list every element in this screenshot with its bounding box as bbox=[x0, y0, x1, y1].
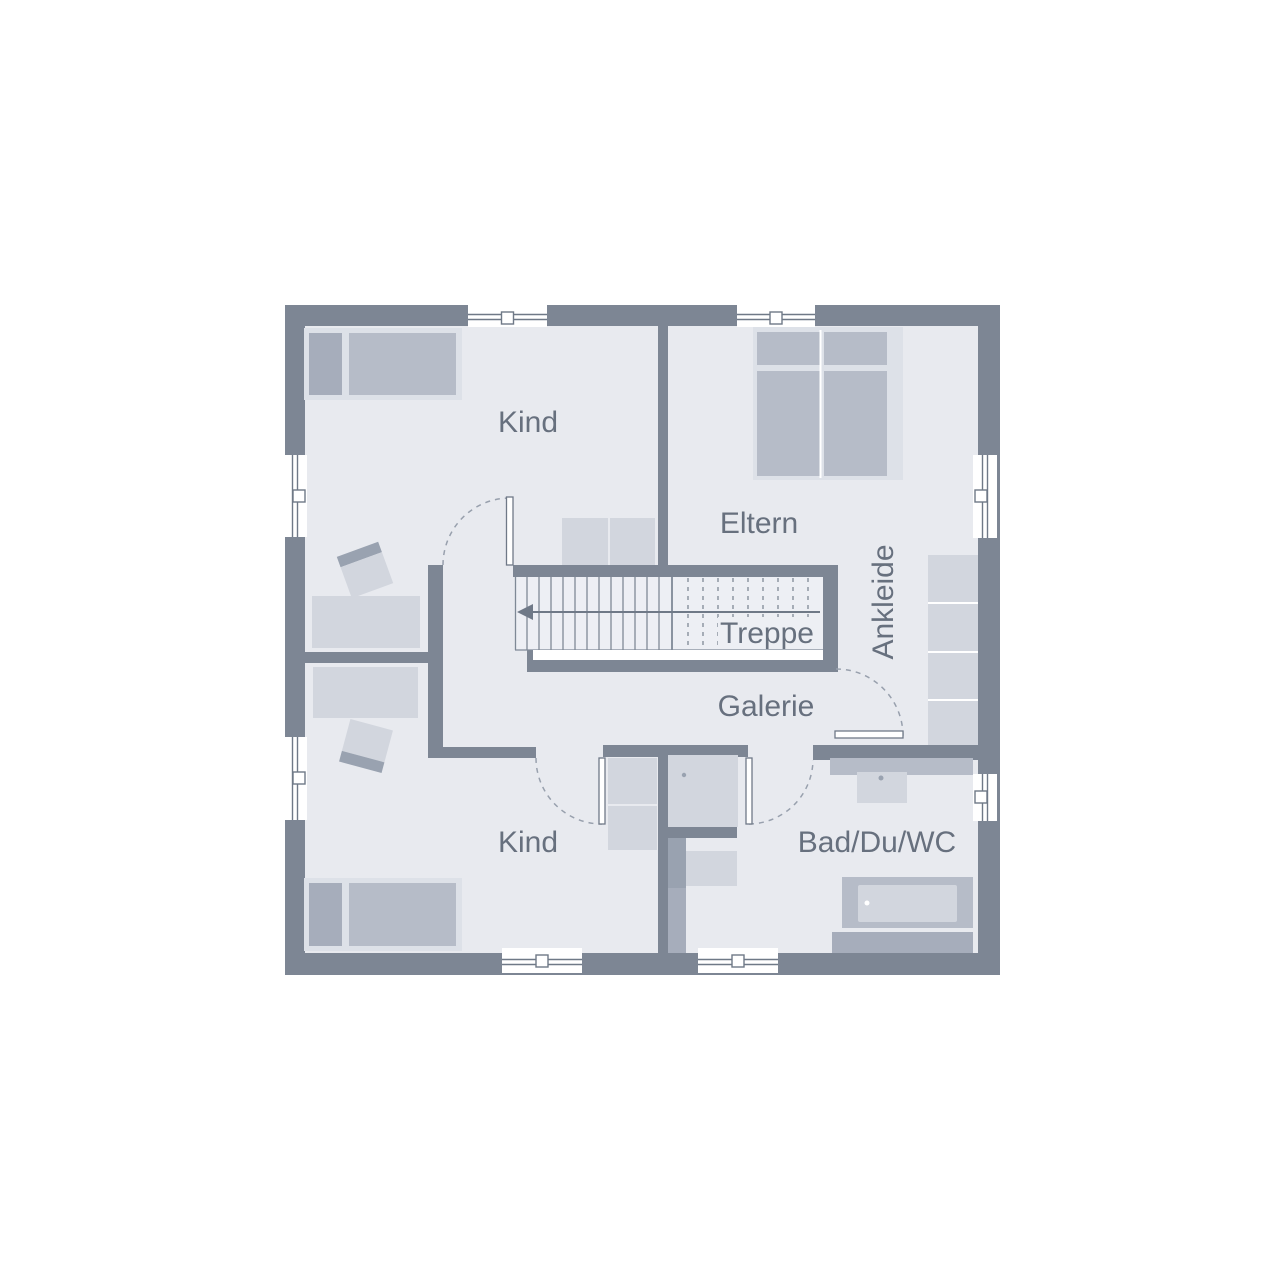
window-top-right-icon bbox=[737, 303, 815, 327]
wall-kind-bad bbox=[658, 745, 668, 953]
window-right-upper-icon bbox=[973, 455, 997, 538]
label-galerie: Galerie bbox=[718, 690, 815, 723]
floorplan-drawing: Kind Eltern Ankleide Treppe Galerie Kind… bbox=[0, 0, 1280, 1280]
wall-kind-eltern bbox=[658, 326, 668, 577]
desk-kind-bottom bbox=[313, 667, 418, 718]
window-bottom-right-icon bbox=[698, 948, 778, 973]
closet-ankleide bbox=[928, 555, 978, 745]
bathtub bbox=[842, 877, 973, 928]
wall-kind-kind bbox=[303, 652, 432, 663]
wall-stair-right bbox=[823, 565, 838, 672]
bed-kind-bottom bbox=[304, 878, 462, 951]
bed-eltern bbox=[753, 327, 903, 480]
label-ankleide: Ankleide bbox=[867, 544, 900, 659]
window-bottom-left-icon bbox=[502, 948, 582, 973]
label-eltern: Eltern bbox=[720, 507, 798, 540]
window-left-lower-icon bbox=[283, 737, 307, 820]
label-treppe: Treppe bbox=[720, 617, 814, 650]
bed-kind-top bbox=[304, 328, 462, 400]
wall-shower-stub bbox=[668, 827, 737, 838]
wardrobe-kind-bottom bbox=[608, 758, 657, 850]
label-bad: Bad/Du/WC bbox=[798, 826, 956, 859]
bathtub-step bbox=[832, 932, 973, 953]
label-kind-bottom: Kind bbox=[498, 826, 558, 859]
label-kind-top: Kind bbox=[498, 406, 558, 439]
washbasin bbox=[857, 772, 907, 803]
desk-kind-top bbox=[312, 596, 420, 648]
wall-stair-bottom bbox=[527, 660, 838, 672]
floorplan-page: Kind Eltern Ankleide Treppe Galerie Kind… bbox=[0, 0, 1280, 1280]
window-top-left-icon bbox=[468, 303, 547, 327]
wall-stair-top bbox=[513, 565, 838, 577]
wall-hall-bottom-left bbox=[428, 747, 536, 758]
wall-bad-top bbox=[813, 745, 978, 760]
shower bbox=[668, 755, 738, 827]
wall-stair-bottom-stub bbox=[527, 650, 533, 660]
window-right-lower-icon bbox=[973, 774, 997, 821]
stair-landing-strip bbox=[533, 650, 823, 660]
window-left-upper-icon bbox=[283, 455, 307, 537]
